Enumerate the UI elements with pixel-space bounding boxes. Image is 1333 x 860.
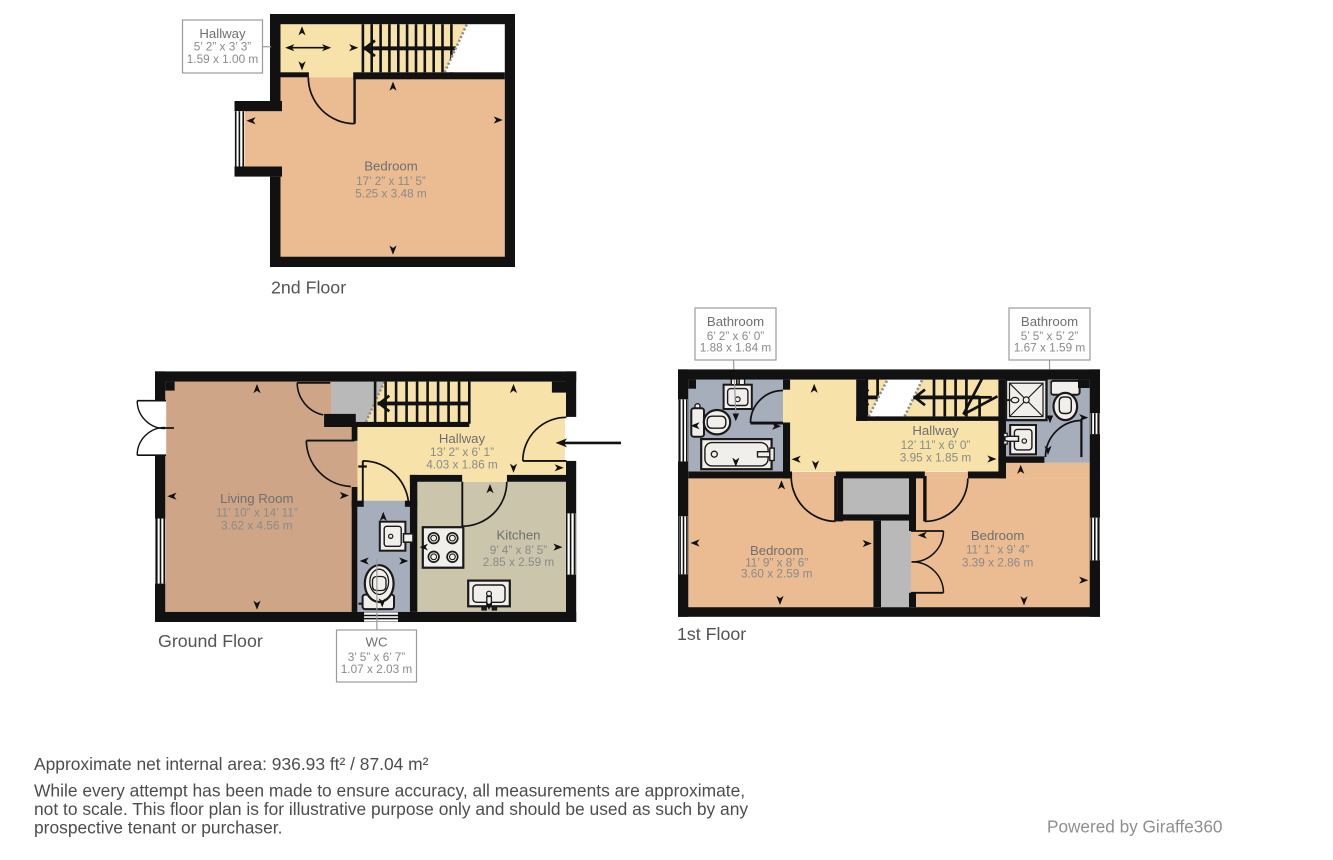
svg-text:Living Room: Living Room [220, 491, 293, 506]
svg-text:prospective tenant or purchase: prospective tenant or purchaser. [34, 818, 282, 838]
svg-text:Kitchen: Kitchen [497, 528, 541, 543]
svg-text:1.67 x 1.59 m: 1.67 x 1.59 m [1014, 341, 1086, 355]
svg-text:3.39 x 2.86 m: 3.39 x 2.86 m [962, 555, 1034, 569]
svg-text:1.07 x 2.03 m: 1.07 x 2.03 m [341, 662, 413, 676]
svg-text:3.95 x 1.85 m: 3.95 x 1.85 m [900, 450, 972, 464]
svg-text:WC: WC [366, 635, 388, 650]
svg-text:Hallway: Hallway [439, 431, 486, 446]
svg-text:1.59 x 1.00 m: 1.59 x 1.00 m [187, 52, 259, 66]
svg-text:11’ 1” x 9’ 4”: 11’ 1” x 9’ 4” [966, 542, 1029, 556]
svg-text:Bathroom: Bathroom [1021, 314, 1078, 329]
svg-text:Hallway: Hallway [912, 423, 959, 438]
svg-text:Powered by Giraffe360: Powered by Giraffe360 [1047, 817, 1222, 837]
svg-text:2.85 x 2.59 m: 2.85 x 2.59 m [483, 555, 555, 569]
svg-text:Bedroom: Bedroom [971, 528, 1025, 543]
svg-text:5.25 x 3.48 m: 5.25 x 3.48 m [355, 186, 427, 200]
svg-text:not to scale. This floor plan: not to scale. This floor plan is for ill… [34, 799, 748, 819]
svg-text:Bathroom: Bathroom [707, 314, 764, 329]
svg-text:Ground Floor: Ground Floor [158, 631, 263, 651]
svg-text:Approximate net internal area:: Approximate net internal area: 936.93 ft… [34, 754, 429, 774]
svg-text:4.03 x 1.86 m: 4.03 x 1.86 m [426, 458, 498, 472]
svg-text:Bedroom: Bedroom [364, 159, 418, 174]
svg-text:While every attempt has been m: While every attempt has been made to ens… [34, 781, 745, 801]
svg-text:3.60 x 2.59 m: 3.60 x 2.59 m [741, 566, 813, 580]
svg-text:1st Floor: 1st Floor [677, 624, 746, 644]
svg-text:3.62 x 4.56 m: 3.62 x 4.56 m [221, 518, 293, 532]
svg-text:1.88 x 1.84 m: 1.88 x 1.84 m [700, 341, 772, 355]
svg-text:2nd Floor: 2nd Floor [271, 278, 346, 298]
